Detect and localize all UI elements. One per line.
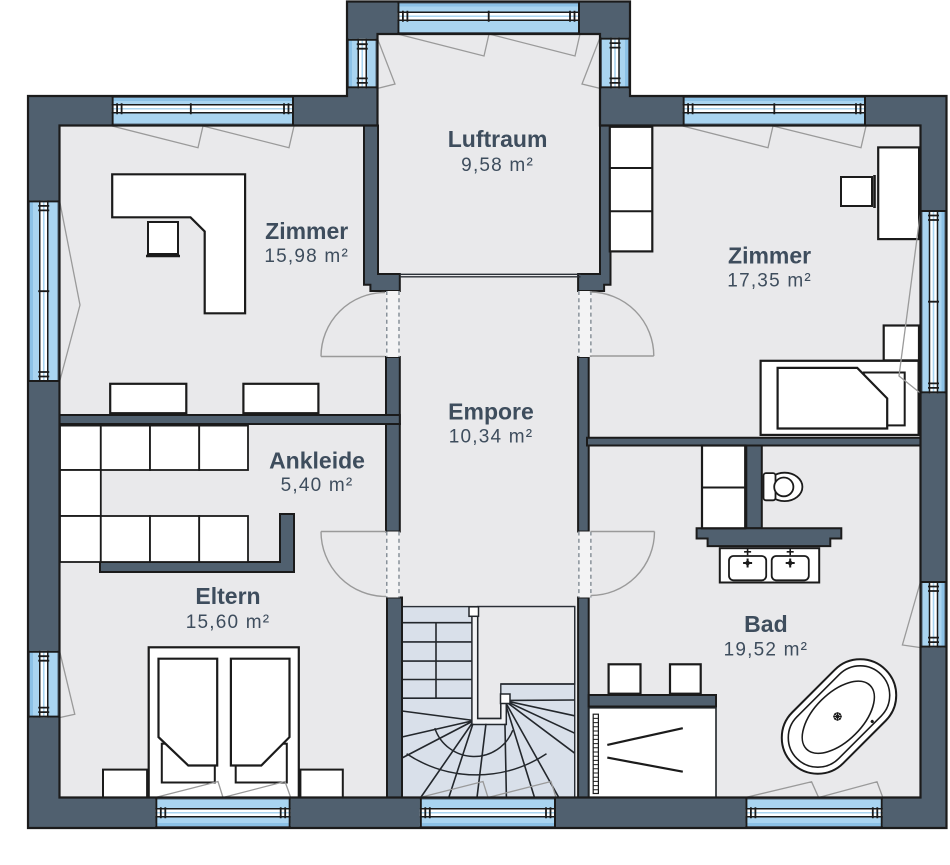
svg-text:15,60 m²: 15,60 m² [186, 612, 271, 633]
svg-text:9,58 m²: 9,58 m² [461, 155, 534, 176]
svg-text:17,35 m²: 17,35 m² [727, 271, 812, 292]
svg-text:5,40 m²: 5,40 m² [281, 475, 354, 496]
svg-text:15,98 m²: 15,98 m² [264, 246, 349, 267]
svg-text:19,52 m²: 19,52 m² [724, 640, 809, 661]
svg-text:Luftraum: Luftraum [448, 126, 548, 152]
svg-text:Zimmer: Zimmer [728, 243, 811, 269]
svg-text:Ankleide: Ankleide [269, 448, 365, 474]
svg-text:Eltern: Eltern [195, 583, 260, 609]
svg-text:Bad: Bad [744, 611, 787, 637]
svg-text:Empore: Empore [448, 399, 534, 425]
svg-text:Zimmer: Zimmer [265, 218, 348, 244]
svg-text:10,34 m²: 10,34 m² [449, 427, 534, 448]
